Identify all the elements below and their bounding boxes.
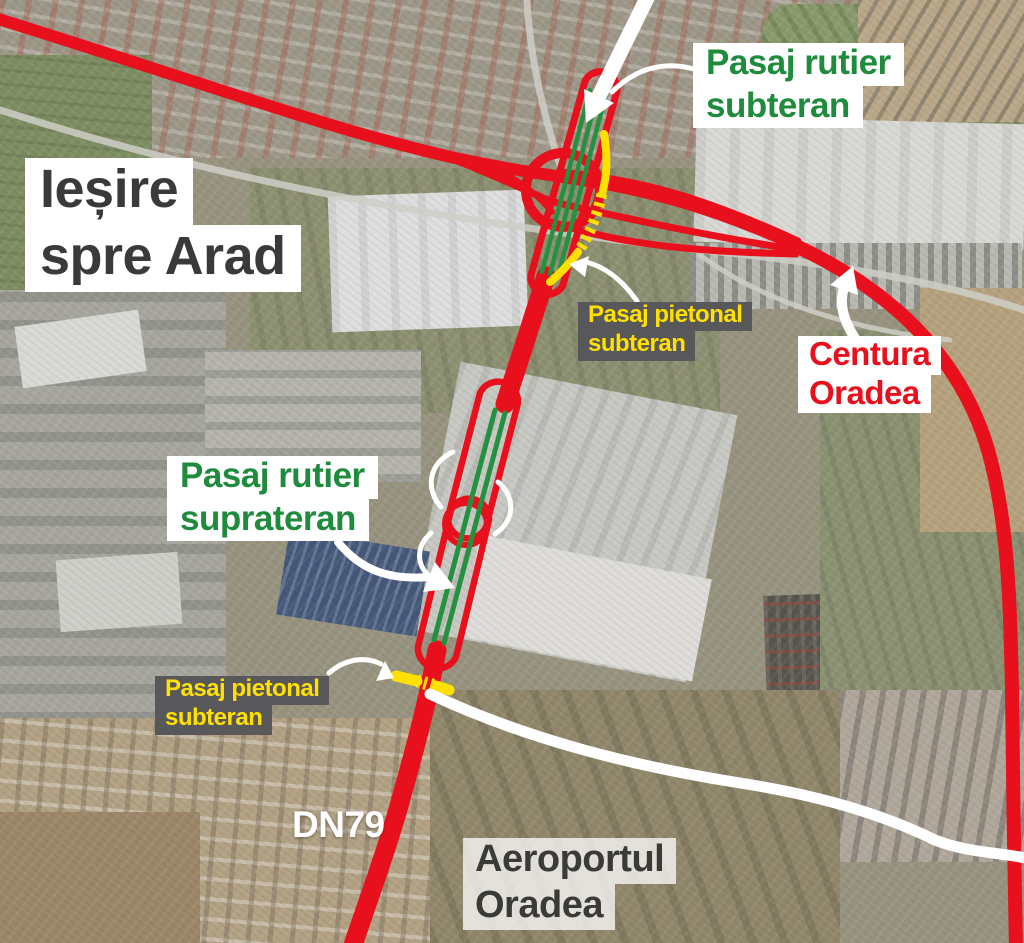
pedestrian-top-arrow-shaft [586,262,637,301]
pedestrian-passage-bottom [436,686,449,690]
pedestrian-top-line1: Pasaj pietonal [578,302,752,331]
pedestrian-top-line2: subteran [578,331,695,360]
underpass-leader-line [612,66,694,92]
exit-to-arad-label: Ieșire spre Arad [25,158,301,292]
road-dn79-south [352,650,437,943]
pedestrian-passage-top [602,134,606,194]
pedestrian-bottom-line1: Pasaj pietonal [155,676,329,705]
junction-infographic: Ieșire spre Arad Pasaj rutier subteran P… [0,0,1024,943]
exit-label-line1: Ieșire [25,158,193,225]
airport-label: Aeroportul Oradea [463,838,676,930]
ramp-curl-arrow [420,533,431,574]
roads-overlay [0,0,1024,943]
road-overpass-label: Pasaj rutier suprateran [167,456,378,541]
pedestrian-underpass-label-bottom: Pasaj pietonal subteran [155,676,329,735]
airport-label-line1: Aeroportul [463,838,676,884]
white-overlay [329,0,1024,858]
pedestrian-bottom-line2: subteran [155,705,272,734]
road-number-label: DN79 [292,806,385,844]
road-underpass-label: Pasaj rutier subteran [693,43,904,128]
airport-label-line2: Oradea [463,884,615,930]
overpass-arrow-shaft [338,542,429,578]
road-number-text: DN79 [292,804,385,845]
pedestrian-underpass-label-top: Pasaj pietonal subteran [578,302,752,361]
overpass-label-line2: suprateran [167,499,369,542]
underpass-label-line2: subteran [693,86,863,129]
overpass-label-line1: Pasaj rutier [167,456,378,499]
existing-street [527,0,560,165]
ring-road-label: Centura Oradea [798,336,941,413]
pedestrian-passage-bottom [396,676,417,681]
ring-road-line2: Oradea [798,375,931,414]
pedestrian-bottom-arrow-shaft [329,660,381,673]
exit-label-line2: spre Arad [25,225,301,292]
airport-access-road [430,694,1024,858]
ring-road-line1: Centura [798,336,941,375]
underpass-label-line1: Pasaj rutier [693,43,904,86]
